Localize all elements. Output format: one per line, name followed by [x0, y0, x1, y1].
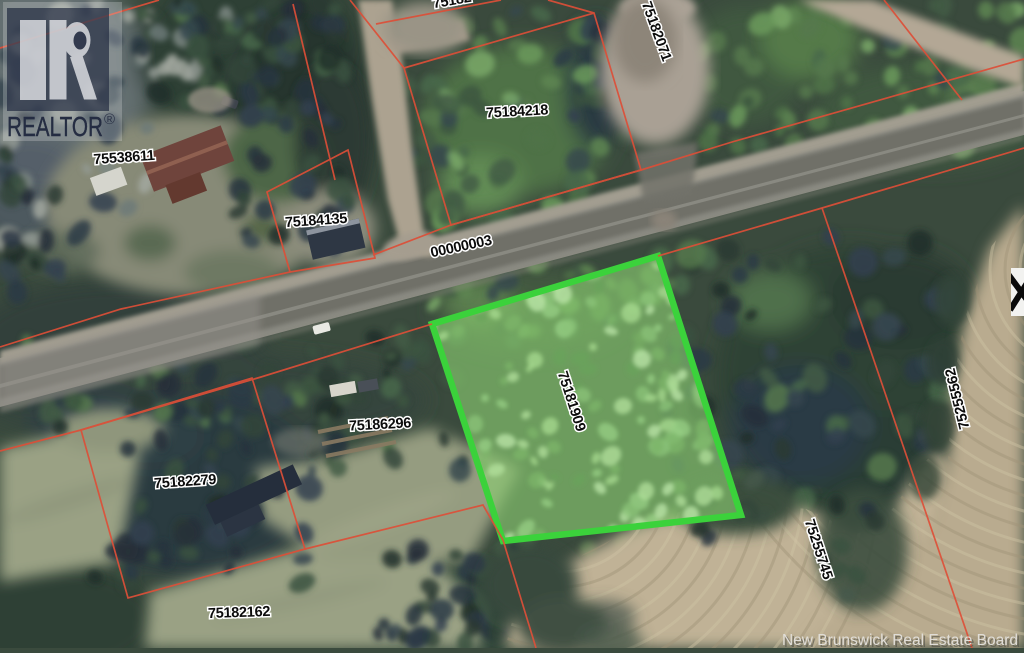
svg-text:75182162: 75182162 — [208, 604, 271, 622]
svg-text:75184218: 75184218 — [486, 102, 549, 121]
svg-text:REALTOR: REALTOR — [7, 111, 103, 142]
svg-text:New Brunswick Real Estate Boar: New Brunswick Real Estate Board — [782, 632, 1018, 648]
svg-text:75186296: 75186296 — [349, 415, 412, 434]
svg-text:®: ® — [104, 111, 115, 128]
